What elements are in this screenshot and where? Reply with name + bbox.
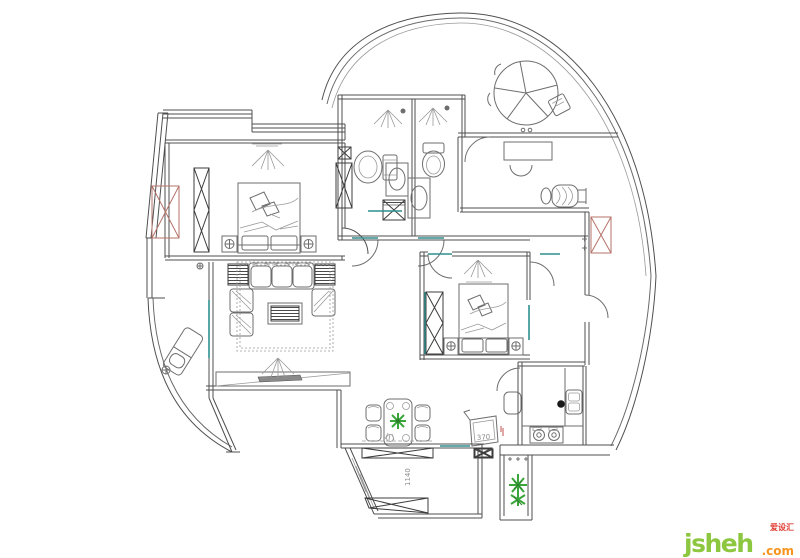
wardrobe-icon (425, 292, 443, 354)
watermark-tld: .com (762, 545, 794, 557)
sink-icon (557, 390, 582, 414)
watermark-badge: 爱设汇 (770, 524, 794, 532)
coffee-table-icon (268, 303, 302, 324)
ac-platform-red-x-icon (582, 217, 611, 253)
shaft-x-icon (336, 147, 405, 220)
bottom-balcony: 1140 (341, 444, 492, 518)
desk-icon (504, 142, 552, 176)
ceiling-light-icon (262, 358, 294, 378)
plant-icon (509, 474, 527, 506)
office-chair-icon (541, 185, 586, 207)
living-room (197, 262, 350, 448)
toilet-icon (423, 143, 445, 177)
bed-throw-decor (468, 295, 506, 316)
ceiling-light-icon (464, 260, 492, 282)
double-bed-icon (459, 284, 508, 354)
kitchen-walls (497, 362, 586, 445)
box-370-icon: 370 (464, 410, 503, 458)
site-watermark: jsheh 爱设汇 .com (684, 524, 794, 556)
floor-plan-drawing: 370 1140 (0, 0, 800, 558)
study-room (458, 61, 618, 365)
washbasin-icon (386, 163, 430, 218)
stove-icon (530, 427, 563, 443)
bedroom2-walls (420, 252, 560, 360)
double-bed-icon (238, 183, 300, 253)
dim-1140-label: 1140 (404, 468, 412, 486)
kitchen (497, 362, 586, 445)
sofa-set (228, 262, 335, 351)
left-balcony (162, 326, 236, 452)
watermark-brand: jsheh (684, 531, 753, 556)
bed-throw-decor (250, 192, 298, 218)
balcony-cabinet-x-icon (362, 448, 492, 513)
table-plant-icon (390, 413, 406, 429)
tv-console-icon (216, 372, 350, 386)
dim-370-label: 370 (477, 433, 491, 442)
wardrobe-icon (194, 168, 209, 252)
chaise-lounge-icon (162, 326, 204, 376)
dining-table-icon (384, 399, 412, 446)
armchair-right-icon (312, 289, 335, 316)
study-walls (458, 133, 618, 365)
kitchen-counter (522, 368, 583, 443)
sofa-3seat-icon (249, 263, 314, 289)
nightstand-lamp-icon (222, 236, 316, 252)
round-table-icon (488, 61, 571, 132)
exterior-walls (146, 13, 656, 455)
service-balcony (500, 455, 532, 520)
armchair-left-icon (230, 289, 253, 336)
ceiling-light-icon (252, 144, 284, 170)
bedroom-2 (420, 252, 560, 360)
toilet-icon (354, 151, 397, 183)
floor-plan-page: 370 1140 jsheh 爱设汇 . (0, 0, 800, 558)
